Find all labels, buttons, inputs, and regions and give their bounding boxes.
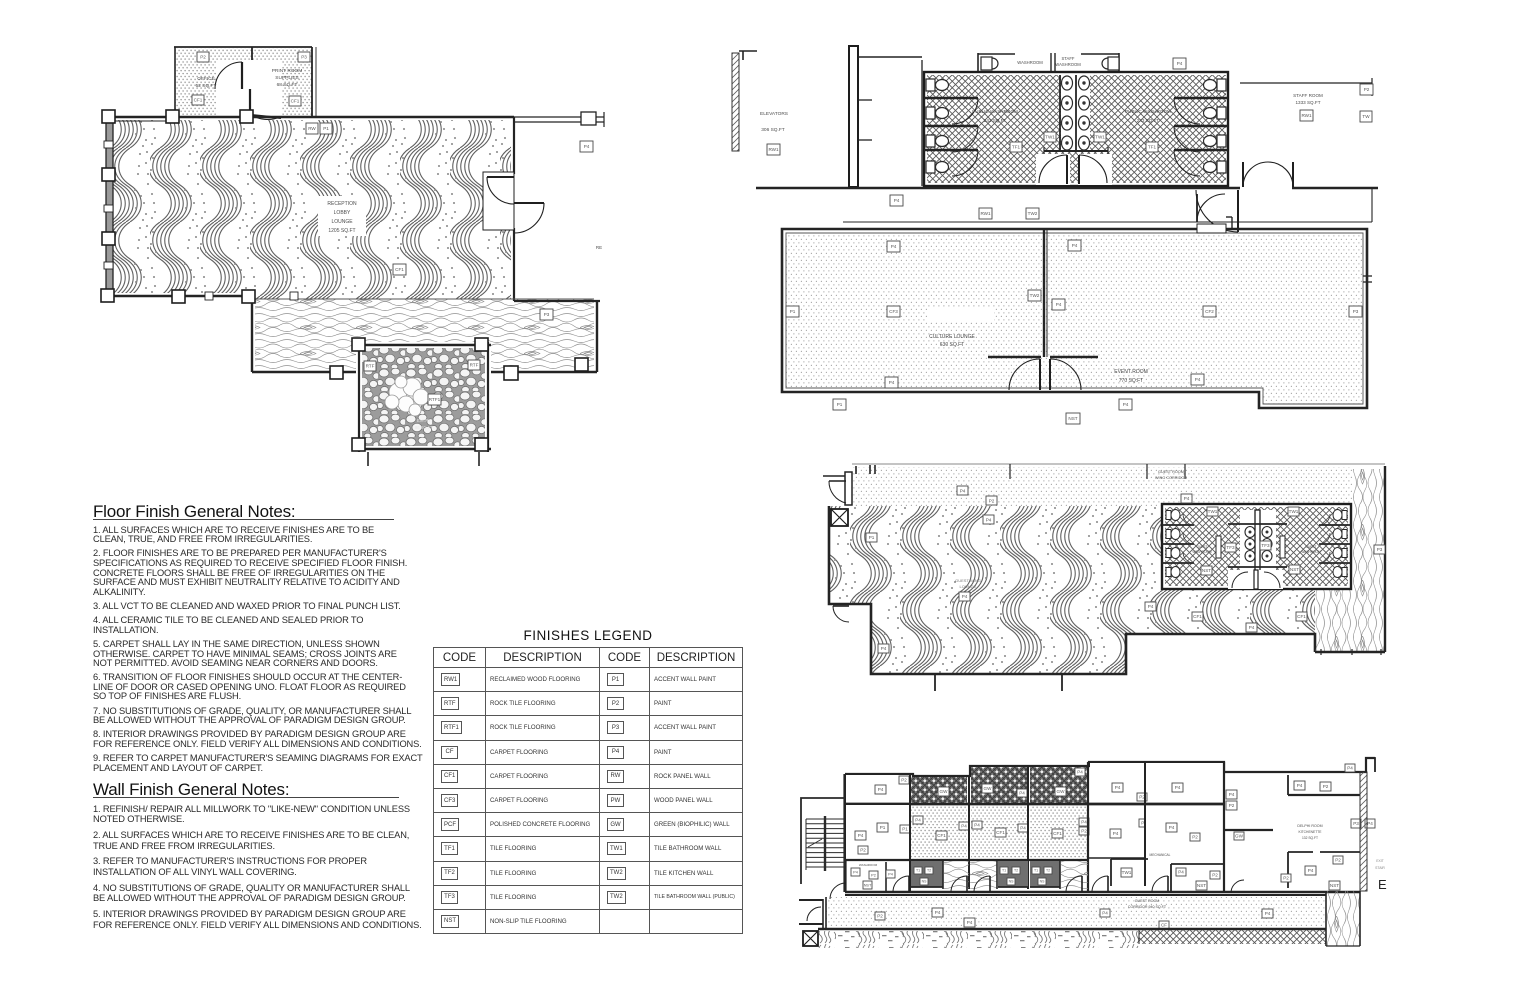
svg-text:RW1: RW1 — [1301, 113, 1312, 118]
svg-text:WING CORRIDOR: WING CORRIDOR — [1155, 476, 1187, 480]
svg-text:P4: P4 — [960, 489, 966, 494]
svg-text:P4: P4 — [1184, 496, 1190, 501]
svg-text:GUEST: GUEST — [1306, 545, 1317, 549]
svg-text:RTF1: RTF1 — [429, 397, 441, 402]
svg-text:T1: T1 — [1034, 869, 1038, 873]
svg-text:P2: P2 — [1081, 829, 1087, 834]
svg-text:P4: P4 — [915, 818, 921, 823]
svg-text:P4: P4 — [962, 594, 968, 599]
svg-text:P4: P4 — [853, 870, 858, 874]
svg-text:RW1: RW1 — [768, 147, 779, 152]
svg-text:P4: P4 — [1347, 766, 1353, 771]
svg-text:P4: P4 — [1113, 831, 1119, 836]
svg-text:P4: P4 — [1081, 820, 1087, 825]
svg-text:P2: P2 — [1364, 87, 1370, 92]
svg-text:NS: NS — [1009, 880, 1015, 884]
svg-text:P1: P1 — [869, 535, 875, 540]
svg-text:P4: P4 — [986, 518, 992, 523]
svg-text:P4: P4 — [1169, 825, 1175, 830]
svg-text:CF1: CF1 — [1297, 614, 1306, 619]
svg-text:WASHROOM: WASHROOM — [1055, 62, 1081, 67]
svg-text:STAFF ROOM: STAFF ROOM — [1293, 93, 1323, 98]
svg-text:TF3: TF3 — [1261, 543, 1270, 548]
svg-text:P4: P4 — [1177, 61, 1183, 66]
svg-text:P4: P4 — [1229, 792, 1235, 797]
svg-text:CF1: CF1 — [395, 267, 404, 272]
svg-text:GW: GW — [984, 786, 993, 791]
svg-text:CF1: CF1 — [996, 830, 1005, 835]
svg-text:P3: P3 — [1353, 821, 1359, 826]
svg-text:WASHROOM: WASHROOM — [859, 863, 878, 867]
svg-text:P4: P4 — [1056, 302, 1062, 307]
svg-text:TF1: TF1 — [1012, 145, 1021, 150]
svg-text:P4: P4 — [888, 872, 893, 876]
svg-text:TW1: TW1 — [1122, 870, 1132, 875]
svg-text:NST: NST — [1068, 416, 1077, 421]
svg-text:P2: P2 — [1192, 835, 1198, 840]
svg-text:P4: P4 — [935, 910, 941, 915]
svg-text:1333 SQ.FT: 1333 SQ.FT — [1295, 100, 1320, 105]
svg-text:132 SQ.FT: 132 SQ.FT — [1302, 836, 1318, 840]
svg-text:P4: P4 — [1195, 377, 1201, 382]
svg-text:NST: NST — [864, 883, 872, 887]
svg-text:P4: P4 — [1019, 791, 1025, 796]
svg-text:CF1: CF1 — [937, 833, 946, 838]
svg-text:P4: P4 — [1297, 783, 1303, 788]
svg-text:LOUNGE: LOUNGE — [331, 219, 353, 225]
svg-text:RW1: RW1 — [980, 211, 991, 216]
svg-text:OFFICE: OFFICE — [197, 76, 215, 82]
svg-text:P3: P3 — [301, 55, 307, 60]
svg-text:P4: P4 — [1072, 243, 1078, 248]
svg-text:STAIR: STAIR — [1375, 866, 1385, 870]
svg-text:SUPPLIES: SUPPLIES — [275, 75, 298, 81]
svg-text:MECHANICAL: MECHANICAL — [1150, 853, 1171, 857]
svg-text:P2: P2 — [1212, 873, 1218, 878]
svg-text:LOUNGE: LOUNGE — [960, 584, 977, 589]
svg-text:TW1: TW1 — [1045, 135, 1055, 140]
svg-text:TW2: TW2 — [1030, 293, 1040, 298]
svg-text:P2: P2 — [200, 55, 206, 60]
svg-text:E: E — [1378, 877, 1387, 892]
svg-text:68 SQ.FT: 68 SQ.FT — [277, 82, 298, 88]
svg-text:CF1: CF1 — [1193, 614, 1202, 619]
svg-text:P4: P4 — [961, 824, 967, 829]
svg-text:ENTRY: ENTRY — [417, 418, 431, 423]
svg-text:TW1: TW1 — [1095, 135, 1105, 140]
svg-text:EXIT: EXIT — [1376, 859, 1384, 863]
svg-text:CORRIDOR 940 SQ.FT: CORRIDOR 940 SQ.FT — [1128, 905, 1167, 909]
svg-text:NST: NST — [1197, 883, 1206, 888]
svg-text:GW: GW — [1057, 789, 1066, 794]
svg-text:NST: NST — [1290, 567, 1299, 572]
svg-text:RE: RE — [596, 245, 602, 250]
svg-text:630 SQ.FT: 630 SQ.FT — [940, 342, 964, 348]
svg-text:P4: P4 — [878, 787, 884, 792]
svg-text:P1: P1 — [790, 309, 796, 314]
svg-text:P4: P4 — [1308, 868, 1314, 873]
svg-text:770 SQ.FT: 770 SQ.FT — [1119, 378, 1143, 384]
svg-text:P2: P2 — [901, 778, 907, 783]
svg-text:P1: P1 — [837, 402, 843, 407]
svg-text:WASHROOM: WASHROOM — [1301, 550, 1321, 554]
svg-text:T2: T2 — [1014, 869, 1018, 873]
svg-text:P3: P3 — [1353, 309, 1359, 314]
svg-text:P2: P2 — [1229, 803, 1235, 808]
svg-text:CF: CF — [1161, 923, 1167, 928]
svg-text:P4: P4 — [1178, 870, 1184, 875]
svg-text:243 SQ.FT: 243 SQ.FT — [984, 118, 1007, 123]
svg-text:TW1: TW1 — [1289, 509, 1299, 514]
svg-text:NS: NS — [922, 880, 928, 884]
svg-text:P4: P4 — [1148, 604, 1154, 609]
svg-text:P4: P4 — [858, 833, 864, 838]
svg-text:P4: P4 — [967, 920, 973, 925]
svg-text:GUEST ROOM: GUEST ROOM — [1135, 899, 1160, 903]
svg-text:DELPHI ROOM: DELPHI ROOM — [1297, 824, 1322, 828]
svg-text:EVENT ROOM: EVENT ROOM — [1114, 369, 1148, 375]
svg-text:P4: P4 — [894, 198, 900, 203]
svg-text:P4: P4 — [891, 244, 897, 249]
svg-text:RECEPTION: RECEPTION — [327, 201, 357, 207]
svg-text:GUEST WING: GUEST WING — [955, 578, 981, 583]
svg-text:TF3: TF3 — [1226, 545, 1235, 550]
svg-text:P3: P3 — [1377, 547, 1383, 552]
svg-text:NST: NST — [1330, 883, 1339, 888]
svg-text:RW: RW — [308, 126, 316, 131]
svg-text:P1: P1 — [323, 126, 329, 131]
svg-text:GW: GW — [1235, 834, 1244, 839]
svg-text:P4: P4 — [974, 823, 980, 828]
svg-text:TW1: TW1 — [1208, 509, 1218, 514]
svg-text:P2: P2 — [860, 848, 866, 853]
svg-text:CF1: CF1 — [194, 98, 203, 103]
svg-text:PUBLIC WASHROOM: PUBLIC WASHROOM — [972, 109, 1018, 114]
svg-text:P4: P4 — [1265, 911, 1271, 916]
svg-text:P4: P4 — [1115, 785, 1121, 790]
svg-text:NST: NST — [1202, 568, 1211, 573]
svg-text:P2: P2 — [989, 499, 995, 504]
svg-text:ELEVATORS: ELEVATORS — [760, 111, 788, 117]
svg-text:P4: P4 — [1123, 402, 1129, 407]
svg-text:PRINT ROOM: PRINT ROOM — [272, 68, 303, 74]
svg-text:P4: P4 — [1175, 785, 1181, 790]
svg-text:T2: T2 — [927, 869, 931, 873]
svg-text:RTF: RTF — [366, 364, 375, 369]
svg-text:P2: P2 — [1323, 784, 1329, 789]
svg-text:RTF: RTF — [470, 363, 479, 368]
svg-text:P2: P2 — [877, 914, 883, 919]
svg-text:PUBLIC WASHROOM: PUBLIC WASHROOM — [1125, 109, 1171, 114]
svg-text:CF3: CF3 — [889, 309, 898, 314]
svg-text:GW: GW — [940, 789, 949, 794]
svg-text:GUEST: GUEST — [1197, 545, 1208, 549]
svg-text:P4: P4 — [1102, 911, 1108, 916]
svg-text:WASHROOM: WASHROOM — [1017, 60, 1043, 65]
svg-text:P4: P4 — [584, 144, 590, 149]
svg-text:T2: T2 — [1046, 869, 1050, 873]
svg-text:P2: P2 — [1335, 858, 1341, 863]
svg-text:CF1: CF1 — [1053, 831, 1062, 836]
svg-text:TF1: TF1 — [1148, 145, 1157, 150]
svg-text:TW2: TW2 — [1028, 211, 1038, 216]
svg-text:STAFF: STAFF — [1062, 56, 1075, 61]
svg-text:NS: NS — [1040, 880, 1046, 884]
svg-text:P2: P2 — [871, 873, 876, 877]
svg-text:T1: T1 — [1002, 869, 1006, 873]
svg-text:52 SQ.FT: 52 SQ.FT — [196, 83, 217, 89]
svg-text:P2: P2 — [1283, 876, 1289, 881]
svg-text:1205 SQ.FT: 1205 SQ.FT — [328, 228, 355, 234]
svg-text:96 SQ.FT: 96 SQ.FT — [415, 425, 434, 430]
svg-text:CULTURE LOUNGE: CULTURE LOUNGE — [929, 334, 975, 340]
svg-text:P3: P3 — [544, 312, 550, 317]
svg-text:P4: P4 — [1367, 821, 1373, 826]
svg-text:P4: P4 — [1249, 625, 1255, 630]
svg-text:WASHROOM: WASHROOM — [1192, 550, 1212, 554]
svg-text:P4: P4 — [1077, 770, 1083, 775]
svg-text:P4: P4 — [1020, 826, 1026, 831]
svg-text:CF2: CF2 — [1205, 309, 1214, 314]
svg-text:TW: TW — [1362, 114, 1370, 119]
svg-text:T1: T1 — [916, 869, 920, 873]
svg-text:P1: P1 — [880, 825, 886, 830]
svg-text:P1: P1 — [902, 827, 908, 832]
svg-text:306 SQ.FT: 306 SQ.FT — [761, 127, 785, 133]
svg-text:GUEST ROOM: GUEST ROOM — [1158, 470, 1184, 474]
svg-text:KITCHENETTE: KITCHENETTE — [1299, 830, 1323, 834]
svg-text:P4: P4 — [881, 646, 887, 651]
svg-text:LOBBY: LOBBY — [334, 210, 351, 216]
svg-text:P4: P4 — [889, 380, 895, 385]
svg-text:CF1: CF1 — [291, 99, 300, 104]
svg-text:243 SQ.FT: 243 SQ.FT — [1137, 118, 1160, 123]
